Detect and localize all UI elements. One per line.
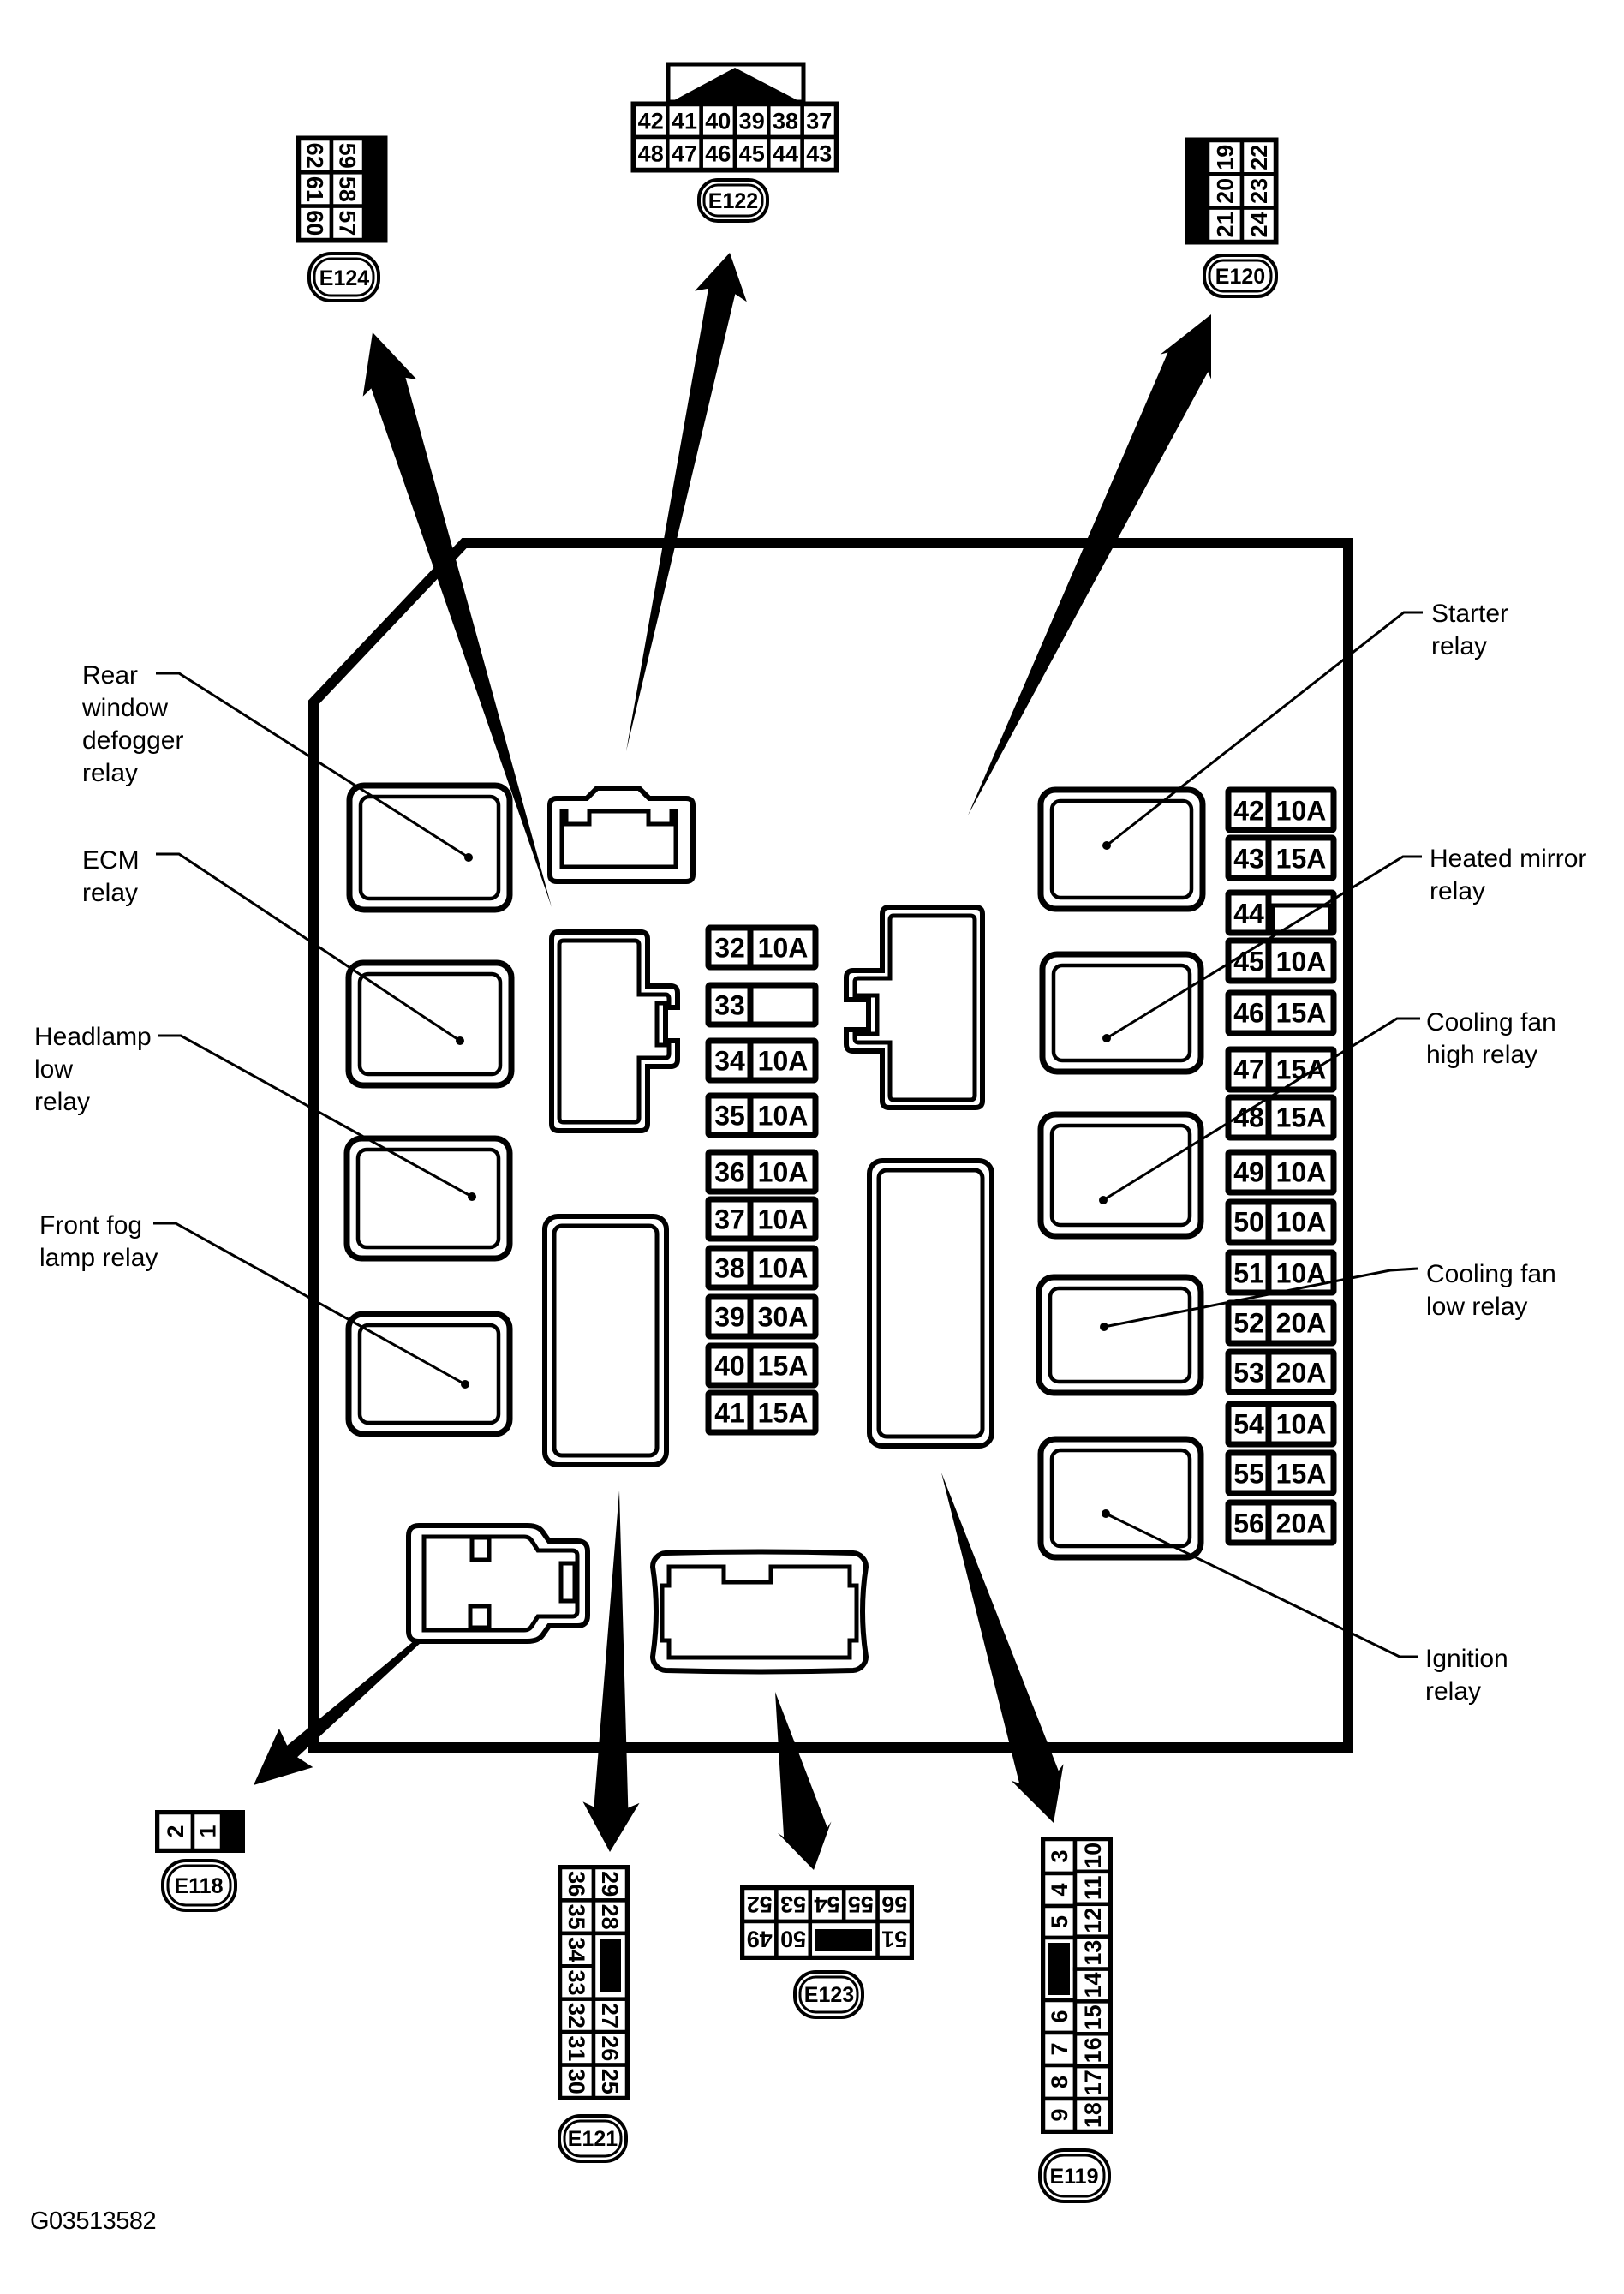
svg-text:10A: 10A <box>758 1253 809 1284</box>
svg-text:38: 38 <box>773 109 798 134</box>
svg-text:10A: 10A <box>1276 1409 1327 1440</box>
svg-text:2: 2 <box>163 1825 188 1837</box>
svg-text:53: 53 <box>1233 1358 1264 1389</box>
svg-text:E122: E122 <box>708 189 758 213</box>
svg-text:33: 33 <box>564 1969 589 1995</box>
svg-text:15A: 15A <box>1276 1102 1327 1133</box>
svg-text:46: 46 <box>705 141 731 167</box>
svg-text:28: 28 <box>597 1904 623 1930</box>
svg-text:10: 10 <box>1080 1843 1106 1868</box>
svg-text:62: 62 <box>302 143 327 169</box>
svg-text:10A: 10A <box>1276 796 1327 827</box>
svg-text:56: 56 <box>881 1891 907 1917</box>
svg-text:36: 36 <box>564 1871 589 1897</box>
svg-text:22: 22 <box>1246 145 1272 170</box>
svg-text:41: 41 <box>672 109 697 134</box>
svg-text:3: 3 <box>1047 1849 1072 1862</box>
svg-text:50: 50 <box>1233 1207 1264 1238</box>
svg-text:18: 18 <box>1080 2102 1106 2128</box>
svg-text:7: 7 <box>1047 2042 1072 2055</box>
svg-text:10A: 10A <box>758 1157 809 1188</box>
svg-text:15A: 15A <box>1276 1054 1327 1085</box>
svg-text:49: 49 <box>1233 1157 1264 1188</box>
svg-text:50: 50 <box>780 1926 806 1951</box>
svg-text:13: 13 <box>1080 1940 1106 1966</box>
svg-text:35: 35 <box>564 1904 589 1930</box>
svg-text:12: 12 <box>1080 1908 1106 1933</box>
svg-text:10A: 10A <box>758 1046 809 1077</box>
svg-text:54: 54 <box>814 1891 839 1917</box>
svg-text:44: 44 <box>1233 899 1264 929</box>
svg-text:46: 46 <box>1233 998 1264 1029</box>
svg-text:23: 23 <box>1246 178 1272 204</box>
svg-text:34: 34 <box>564 1937 589 1962</box>
svg-text:47: 47 <box>1233 1054 1264 1085</box>
svg-text:32: 32 <box>714 933 745 964</box>
svg-text:5: 5 <box>1047 1915 1072 1928</box>
svg-text:39: 39 <box>739 109 765 134</box>
svg-text:20A: 20A <box>1276 1358 1327 1389</box>
svg-text:30: 30 <box>564 2069 589 2094</box>
svg-text:56: 56 <box>1233 1508 1264 1539</box>
svg-text:15A: 15A <box>758 1351 809 1382</box>
svg-text:33: 33 <box>714 990 745 1021</box>
svg-text:15A: 15A <box>758 1398 809 1429</box>
svg-text:59: 59 <box>334 143 360 169</box>
svg-text:4: 4 <box>1047 1883 1072 1896</box>
svg-text:26: 26 <box>597 2035 623 2061</box>
svg-text:61: 61 <box>302 176 327 202</box>
svg-text:53: 53 <box>780 1891 806 1917</box>
svg-text:37: 37 <box>806 109 832 134</box>
svg-text:45: 45 <box>739 141 765 167</box>
svg-text:41: 41 <box>714 1398 745 1429</box>
svg-text:10A: 10A <box>1276 1207 1327 1238</box>
svg-text:17: 17 <box>1080 2070 1106 2095</box>
svg-text:55: 55 <box>848 1891 874 1917</box>
svg-text:14: 14 <box>1080 1972 1106 1998</box>
svg-text:E123: E123 <box>804 1983 854 2007</box>
svg-text:43: 43 <box>1233 844 1264 875</box>
svg-text:15: 15 <box>1080 2004 1106 2030</box>
svg-text:31: 31 <box>564 2035 589 2061</box>
svg-text:E119: E119 <box>1049 2165 1098 2189</box>
svg-text:60: 60 <box>302 210 327 236</box>
svg-text:40: 40 <box>714 1351 745 1382</box>
svg-text:24: 24 <box>1246 212 1272 237</box>
svg-text:39: 39 <box>714 1302 745 1333</box>
svg-text:48: 48 <box>638 141 664 167</box>
svg-text:49: 49 <box>747 1926 773 1951</box>
svg-text:57: 57 <box>334 210 360 236</box>
svg-text:20: 20 <box>1213 178 1239 204</box>
svg-text:29: 29 <box>597 1871 623 1897</box>
svg-text:11: 11 <box>1080 1876 1106 1901</box>
svg-text:E121: E121 <box>568 2127 618 2151</box>
svg-text:8: 8 <box>1047 2076 1072 2088</box>
svg-text:36: 36 <box>714 1157 745 1188</box>
svg-text:54: 54 <box>1233 1409 1264 1440</box>
svg-text:30A: 30A <box>758 1302 809 1333</box>
svg-text:9: 9 <box>1047 2108 1072 2121</box>
svg-text:44: 44 <box>773 141 798 167</box>
svg-text:E124: E124 <box>319 266 369 290</box>
svg-text:37: 37 <box>714 1204 745 1235</box>
svg-text:47: 47 <box>672 141 697 167</box>
svg-text:E120: E120 <box>1215 265 1265 289</box>
svg-text:15A: 15A <box>1276 1459 1327 1490</box>
svg-text:58: 58 <box>334 176 360 202</box>
svg-text:1: 1 <box>195 1825 221 1837</box>
svg-text:G03513582: G03513582 <box>30 2207 156 2235</box>
svg-text:52: 52 <box>1233 1308 1264 1339</box>
svg-text:40: 40 <box>705 109 731 134</box>
svg-text:42: 42 <box>1233 796 1264 827</box>
svg-text:10A: 10A <box>758 1101 809 1132</box>
svg-text:51: 51 <box>1233 1258 1264 1289</box>
svg-text:15A: 15A <box>1276 998 1327 1029</box>
svg-text:51: 51 <box>881 1926 907 1951</box>
svg-text:55: 55 <box>1233 1459 1264 1490</box>
svg-text:38: 38 <box>714 1253 745 1284</box>
svg-text:10A: 10A <box>758 933 809 964</box>
svg-text:10A: 10A <box>758 1204 809 1235</box>
svg-text:52: 52 <box>747 1891 773 1917</box>
svg-text:27: 27 <box>597 2003 623 2028</box>
svg-text:15A: 15A <box>1276 844 1327 875</box>
svg-text:20A: 20A <box>1276 1508 1327 1539</box>
svg-text:25: 25 <box>597 2069 623 2094</box>
svg-text:32: 32 <box>564 2003 589 2028</box>
svg-text:20A: 20A <box>1276 1308 1327 1339</box>
svg-text:42: 42 <box>638 109 664 134</box>
svg-text:E118: E118 <box>174 1874 223 1898</box>
svg-text:10A: 10A <box>1276 947 1327 977</box>
svg-text:43: 43 <box>806 141 832 167</box>
svg-text:19: 19 <box>1213 145 1239 170</box>
svg-text:6: 6 <box>1047 2010 1072 2022</box>
svg-text:21: 21 <box>1213 212 1239 237</box>
svg-text:16: 16 <box>1080 2037 1106 2063</box>
svg-text:34: 34 <box>714 1046 745 1077</box>
svg-text:35: 35 <box>714 1101 745 1132</box>
svg-text:10A: 10A <box>1276 1157 1327 1188</box>
